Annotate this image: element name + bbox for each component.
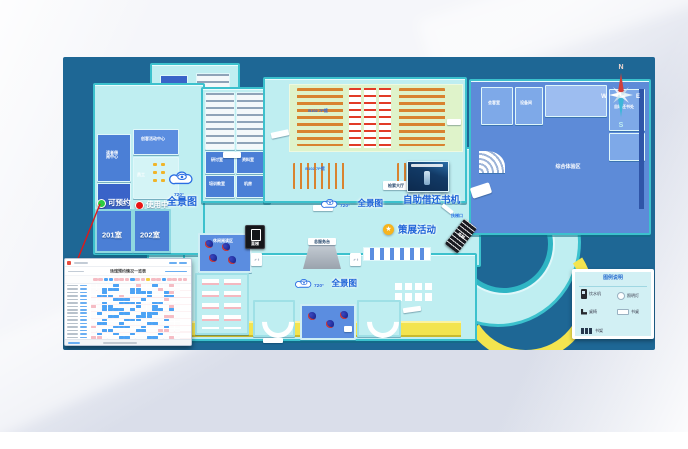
booking-cell (164, 284, 169, 287)
booking-cell (147, 329, 152, 332)
booking-cell (97, 284, 102, 287)
exhibition-star-icon: ★ (383, 224, 394, 235)
booking-cell (108, 333, 113, 336)
booking-cell (141, 305, 146, 308)
booking-cell (147, 302, 152, 305)
booking-grid-row (91, 291, 191, 294)
legend-label: 书桌 (631, 309, 639, 315)
booking-cell (108, 329, 113, 332)
booking-cell (158, 305, 163, 308)
booking-cell (136, 291, 141, 294)
booking-cell (113, 295, 118, 298)
booking-cell (130, 284, 135, 287)
booking-cell (102, 288, 107, 291)
booking-cell (91, 333, 96, 336)
beanbag-room[interactable] (300, 304, 356, 340)
booking-cell (152, 298, 157, 301)
legend-label: 照明灯 (627, 293, 639, 299)
date-tab[interactable] (98, 278, 103, 281)
date-tab[interactable] (172, 278, 177, 281)
booking-cell (136, 298, 141, 301)
date-tab[interactable] (114, 278, 119, 281)
compass-e: E (636, 94, 640, 100)
booking-cell (147, 326, 152, 329)
booking-grid-row (91, 329, 191, 332)
hall-tag: B102 7P馆 (305, 167, 325, 171)
panorama-badge-2[interactable]: 720° 全景图 (321, 197, 383, 210)
booking-cell (108, 312, 113, 315)
panorama-label: 全景图 (332, 279, 358, 288)
direction-sign (447, 119, 461, 125)
booking-cell (164, 305, 169, 308)
booking-cell (124, 329, 129, 332)
tables-room[interactable] (195, 273, 249, 335)
booking-cell (141, 312, 146, 315)
self-service-screen (407, 161, 449, 192)
booking-cell (102, 295, 107, 298)
booking-cell (141, 302, 146, 305)
booking-cell (113, 305, 118, 308)
red-book-stacks (349, 88, 393, 148)
booking-cell (97, 305, 102, 308)
room-equipment[interactable] (515, 87, 543, 125)
legend-item: 照明灯 (617, 290, 651, 301)
legend-item: 书桌 (617, 306, 647, 317)
booking-cell (175, 302, 180, 305)
booking-cell (152, 295, 157, 298)
booking-cell (108, 305, 113, 308)
booking-cell (119, 312, 124, 315)
booking-cell (102, 322, 107, 325)
booking-cell (113, 322, 118, 325)
booking-cell (141, 322, 146, 325)
booking-cell (169, 308, 174, 311)
booking-cell (102, 312, 107, 315)
booking-cell (108, 291, 113, 294)
titlebar-text (74, 262, 88, 264)
room-202-label: 202室 (140, 230, 160, 241)
booking-cell (102, 284, 107, 287)
reception-room[interactable] (357, 300, 401, 337)
booking-cell (152, 312, 157, 315)
booking-cell (147, 312, 152, 315)
app-logo-icon (67, 261, 71, 265)
booking-cell (91, 305, 96, 308)
bench-rows (399, 88, 445, 146)
booking-cell (130, 329, 135, 332)
panorama-badge-3[interactable]: 720° 全景图 (295, 277, 357, 290)
footer-link[interactable] (68, 342, 80, 344)
booking-cell (130, 333, 135, 336)
legend-item: 桌椅 (581, 306, 605, 317)
booking-cell (119, 298, 124, 301)
date-tab[interactable] (130, 278, 135, 281)
booking-cell (113, 329, 118, 332)
curved-stairs (479, 151, 505, 173)
booking-cell (175, 312, 180, 315)
booking-cell (175, 322, 180, 325)
table-column (202, 279, 219, 329)
elevator-label: 直梯 (251, 242, 259, 246)
booking-cell (108, 315, 113, 318)
booking-cell (97, 298, 102, 301)
booking-cell (130, 302, 135, 305)
room-label-reading-center: 读者借阅中心 (105, 151, 120, 159)
booking-cell (108, 322, 113, 325)
booking-cell (91, 288, 96, 291)
room-sign (344, 326, 352, 332)
booking-cell (141, 284, 146, 287)
escalator-entry-label: 扶梯口 (451, 214, 463, 218)
booking-cell (169, 312, 174, 315)
booking-cell (141, 288, 146, 291)
compass-w: W (601, 94, 607, 100)
booking-cell (124, 295, 129, 298)
panorama-label: 全景图 (167, 198, 197, 208)
in-use-status-label: 使用中 (146, 201, 169, 209)
room-label-equipment: 设备间 (520, 101, 532, 105)
booking-cell (147, 308, 152, 311)
booking-cell (102, 291, 107, 294)
booking-cell (108, 308, 113, 311)
booking-cell (152, 284, 157, 287)
booking-cell (158, 312, 163, 315)
booking-cell (91, 291, 96, 294)
booking-cell (147, 288, 152, 291)
room-label-study3: 培训教室 (209, 182, 225, 186)
direction-sign (223, 152, 241, 158)
booking-cell (164, 295, 169, 298)
date-tab[interactable] (93, 278, 98, 281)
date-tab[interactable] (151, 278, 156, 281)
booking-cell (130, 305, 135, 308)
room-guest[interactable] (481, 87, 513, 125)
booking-cell (136, 305, 141, 308)
booking-cell (169, 333, 174, 336)
booking-cell (124, 291, 129, 294)
booking-cell (119, 308, 124, 311)
booking-cell (136, 302, 141, 305)
date-tab[interactable] (104, 278, 109, 281)
date-tab[interactable] (109, 278, 114, 281)
booking-cell (130, 308, 135, 311)
legend-item: 书架 (581, 321, 611, 339)
elevator-box: 直梯 (245, 225, 265, 249)
booking-cell (147, 315, 152, 318)
search-hall-label: 检索大厅 (388, 184, 404, 188)
booking-cell (97, 326, 102, 329)
restroom-icon: ♂♀ (254, 258, 260, 262)
booking-cell (102, 302, 107, 305)
booking-cell (175, 305, 180, 308)
restroom-sign: ♂♀ (251, 253, 262, 266)
booking-cell (130, 295, 135, 298)
booking-cell (164, 329, 169, 332)
booking-cell (164, 291, 169, 294)
booking-grid-row (91, 298, 191, 301)
booking-cell (164, 322, 169, 325)
booking-cell (147, 333, 152, 336)
direction-sign (263, 338, 283, 343)
booking-cell (124, 284, 129, 287)
booking-cell (91, 302, 96, 305)
booking-cell (158, 288, 163, 291)
booking-cell (164, 312, 169, 315)
booking-cell (175, 315, 180, 318)
compass-n: N (618, 64, 623, 71)
booking-grid-row (91, 308, 191, 311)
booking-cell (113, 288, 118, 291)
room-label-leisure: 休闲阅读区 (213, 239, 233, 243)
booking-cell (164, 302, 169, 305)
room-label-experience-hall: 综合体验区 (556, 165, 581, 170)
date-tab[interactable] (135, 278, 140, 281)
booking-cell (147, 291, 152, 294)
booking-cell (136, 312, 141, 315)
date-tab[interactable] (125, 278, 130, 281)
room-study-4[interactable] (236, 175, 266, 198)
bench-rows (297, 88, 343, 146)
booking-cell (152, 291, 157, 294)
booking-cell (141, 295, 146, 298)
booking-cell (169, 322, 174, 325)
legend-label: 桌椅 (589, 309, 597, 315)
booking-cell (97, 322, 102, 325)
booking-cell (136, 288, 141, 291)
booking-cell (136, 329, 141, 332)
booking-grid-row (91, 322, 191, 325)
restroom-icon: ♂♀ (353, 258, 359, 262)
booking-cell (119, 295, 124, 298)
booking-cell (124, 322, 129, 325)
booking-cell (97, 315, 102, 318)
panorama-badge-1[interactable]: 720° 全景图 (167, 169, 197, 208)
date-tab[interactable] (119, 278, 124, 281)
booking-cell (124, 308, 129, 311)
map-panel: ♂♀ 总服务台 ♂♀ (63, 57, 655, 350)
booking-cell (164, 315, 169, 318)
service-desk-label: 总服务台 (314, 240, 330, 244)
booking-cell (124, 333, 129, 336)
booking-cell (97, 308, 102, 311)
booking-cell (175, 295, 180, 298)
panorama-cloud-icon (169, 169, 195, 187)
booking-grid[interactable] (91, 284, 191, 339)
panorama-label: 全景图 (358, 199, 384, 208)
popup-title: 场馆预约情况一览表 (110, 268, 146, 274)
date-tab[interactable] (178, 278, 183, 281)
time-column (65, 284, 91, 339)
booking-cell (141, 333, 146, 336)
booking-cell (119, 315, 124, 318)
panorama-degree: 720° (314, 283, 324, 288)
chair-icon (581, 309, 587, 315)
search-hall-sign: 检索大厅 (383, 181, 409, 190)
date-tab[interactable] (146, 278, 151, 281)
booking-cell (152, 302, 157, 305)
booking-cell (158, 326, 163, 329)
booking-cell (124, 315, 129, 318)
lamp-icon (617, 292, 625, 300)
booking-grid-row (91, 315, 191, 318)
booking-cell (130, 288, 135, 291)
booking-cell (119, 329, 124, 332)
room-label-guest: 会客室 (488, 101, 500, 105)
booking-cell (130, 291, 135, 294)
booking-cell (130, 322, 135, 325)
booking-cell (102, 308, 107, 311)
booking-cell (119, 302, 124, 305)
booking-cell (102, 305, 107, 308)
booking-cell (158, 291, 163, 294)
booking-cell (130, 315, 135, 318)
booking-cell (124, 312, 129, 315)
elevator-icon (251, 229, 261, 241)
booking-cell (175, 288, 180, 291)
mini-shelves (395, 283, 435, 301)
legend-label: 书架 (595, 327, 603, 333)
booking-cell (158, 315, 163, 318)
room-label-maker-center: 创客活动中心 (141, 137, 165, 141)
titlebar-link[interactable] (169, 262, 177, 264)
booking-cell (91, 312, 96, 315)
booking-cell (158, 298, 163, 301)
booking-cell (119, 326, 124, 329)
booking-cell (147, 284, 152, 287)
booking-cell (175, 308, 180, 311)
table-column (224, 279, 241, 329)
booking-cell (141, 308, 146, 311)
booking-cell (175, 326, 180, 329)
booking-cell (119, 322, 124, 325)
booking-cell (102, 298, 107, 301)
booking-schedule-popup[interactable]: 场馆预约情况一览表 (64, 258, 192, 346)
booking-cell (152, 315, 157, 318)
desk-icon (617, 309, 629, 315)
booking-cell (141, 329, 146, 332)
booking-cell (136, 284, 141, 287)
booking-cell (164, 326, 169, 329)
booking-cell (91, 322, 96, 325)
booking-cell (91, 284, 96, 287)
booking-cell (164, 298, 169, 301)
status-connector-line (71, 197, 111, 267)
booking-cell (147, 295, 152, 298)
booking-cell (91, 295, 96, 298)
booking-cell (130, 298, 135, 301)
booking-cell (97, 288, 102, 291)
room-label-study2: 资料室 (242, 158, 254, 162)
titlebar-link[interactable] (179, 262, 187, 264)
booking-cell (164, 308, 169, 311)
booking-cell (175, 329, 180, 332)
scrollbar-thumb[interactable] (103, 342, 137, 344)
booking-cell (164, 333, 169, 336)
booking-cell (108, 284, 113, 287)
booking-cell (152, 322, 157, 325)
popup-scrollbar[interactable] (65, 339, 191, 346)
legend-title: 图例说明 (589, 274, 636, 281)
booking-cell (152, 329, 157, 332)
date-tab[interactable] (156, 278, 161, 281)
date-tabs[interactable] (65, 276, 191, 284)
room-label-staff: 员工 (137, 173, 145, 177)
booking-cell (119, 291, 124, 294)
header-text (68, 271, 84, 273)
booking-cell (158, 308, 163, 311)
popup-header: 场馆预约情况一览表 (65, 267, 191, 276)
booking-cell (136, 315, 141, 318)
booking-cell (113, 312, 118, 315)
compass-rose: N W E S (601, 61, 641, 129)
reception-room[interactable] (253, 300, 295, 337)
booking-cell (152, 333, 157, 336)
booking-cell (108, 326, 113, 329)
booking-cell (124, 288, 129, 291)
booking-cell (91, 326, 96, 329)
booking-cell (130, 326, 135, 329)
self-service-label[interactable]: 自助借还书机 (403, 196, 460, 206)
hall-tag: B102 7P馆 (308, 109, 328, 113)
exhibition-label[interactable]: 策展活动 (398, 226, 436, 236)
bookshelf-stripes (236, 92, 266, 150)
room-study-3[interactable] (205, 175, 235, 198)
booking-cell (158, 329, 163, 332)
header-link[interactable] (165, 271, 187, 273)
booking-cell (119, 333, 124, 336)
booking-cell (169, 295, 174, 298)
booking-cell (124, 298, 129, 301)
booking-cell (91, 308, 96, 311)
popup-body (65, 284, 191, 339)
booking-cell (97, 329, 102, 332)
date-tab[interactable] (141, 278, 146, 281)
escalator-label: 电梯 (457, 232, 466, 240)
booking-cell (169, 284, 174, 287)
service-desk-sign: 总服务台 (308, 238, 336, 245)
booking-cell (136, 295, 141, 298)
booking-cell (175, 333, 180, 336)
panorama-degree: 720° (174, 192, 184, 197)
booking-cell (130, 312, 135, 315)
booking-cell (102, 326, 107, 329)
booking-cell (158, 284, 163, 287)
booking-cell (158, 333, 163, 336)
booking-cell (169, 305, 174, 308)
date-tab[interactable] (183, 278, 188, 281)
booking-cell (97, 302, 102, 305)
legend-label: 饮水机 (589, 291, 601, 297)
page-background: ♂♀ 总服务台 ♂♀ (0, 0, 688, 432)
direction-sign (271, 129, 290, 139)
panorama-cloud-icon (321, 197, 339, 210)
booking-cell (113, 284, 118, 287)
booking-cell (97, 295, 102, 298)
booking-cell (175, 291, 180, 294)
room-label-study1: 研讨室 (211, 158, 223, 162)
date-tab[interactable] (162, 278, 167, 281)
date-tab[interactable] (167, 278, 172, 281)
booking-cell (108, 302, 113, 305)
booking-cell (152, 326, 157, 329)
booking-cell (113, 298, 118, 301)
booking-cell (147, 322, 152, 325)
booking-cell (152, 308, 157, 311)
panorama-degree: 720° (340, 203, 350, 208)
restroom-sign: ♂♀ (350, 253, 361, 266)
booking-cell (141, 315, 146, 318)
room-maker-center[interactable] (133, 129, 179, 155)
